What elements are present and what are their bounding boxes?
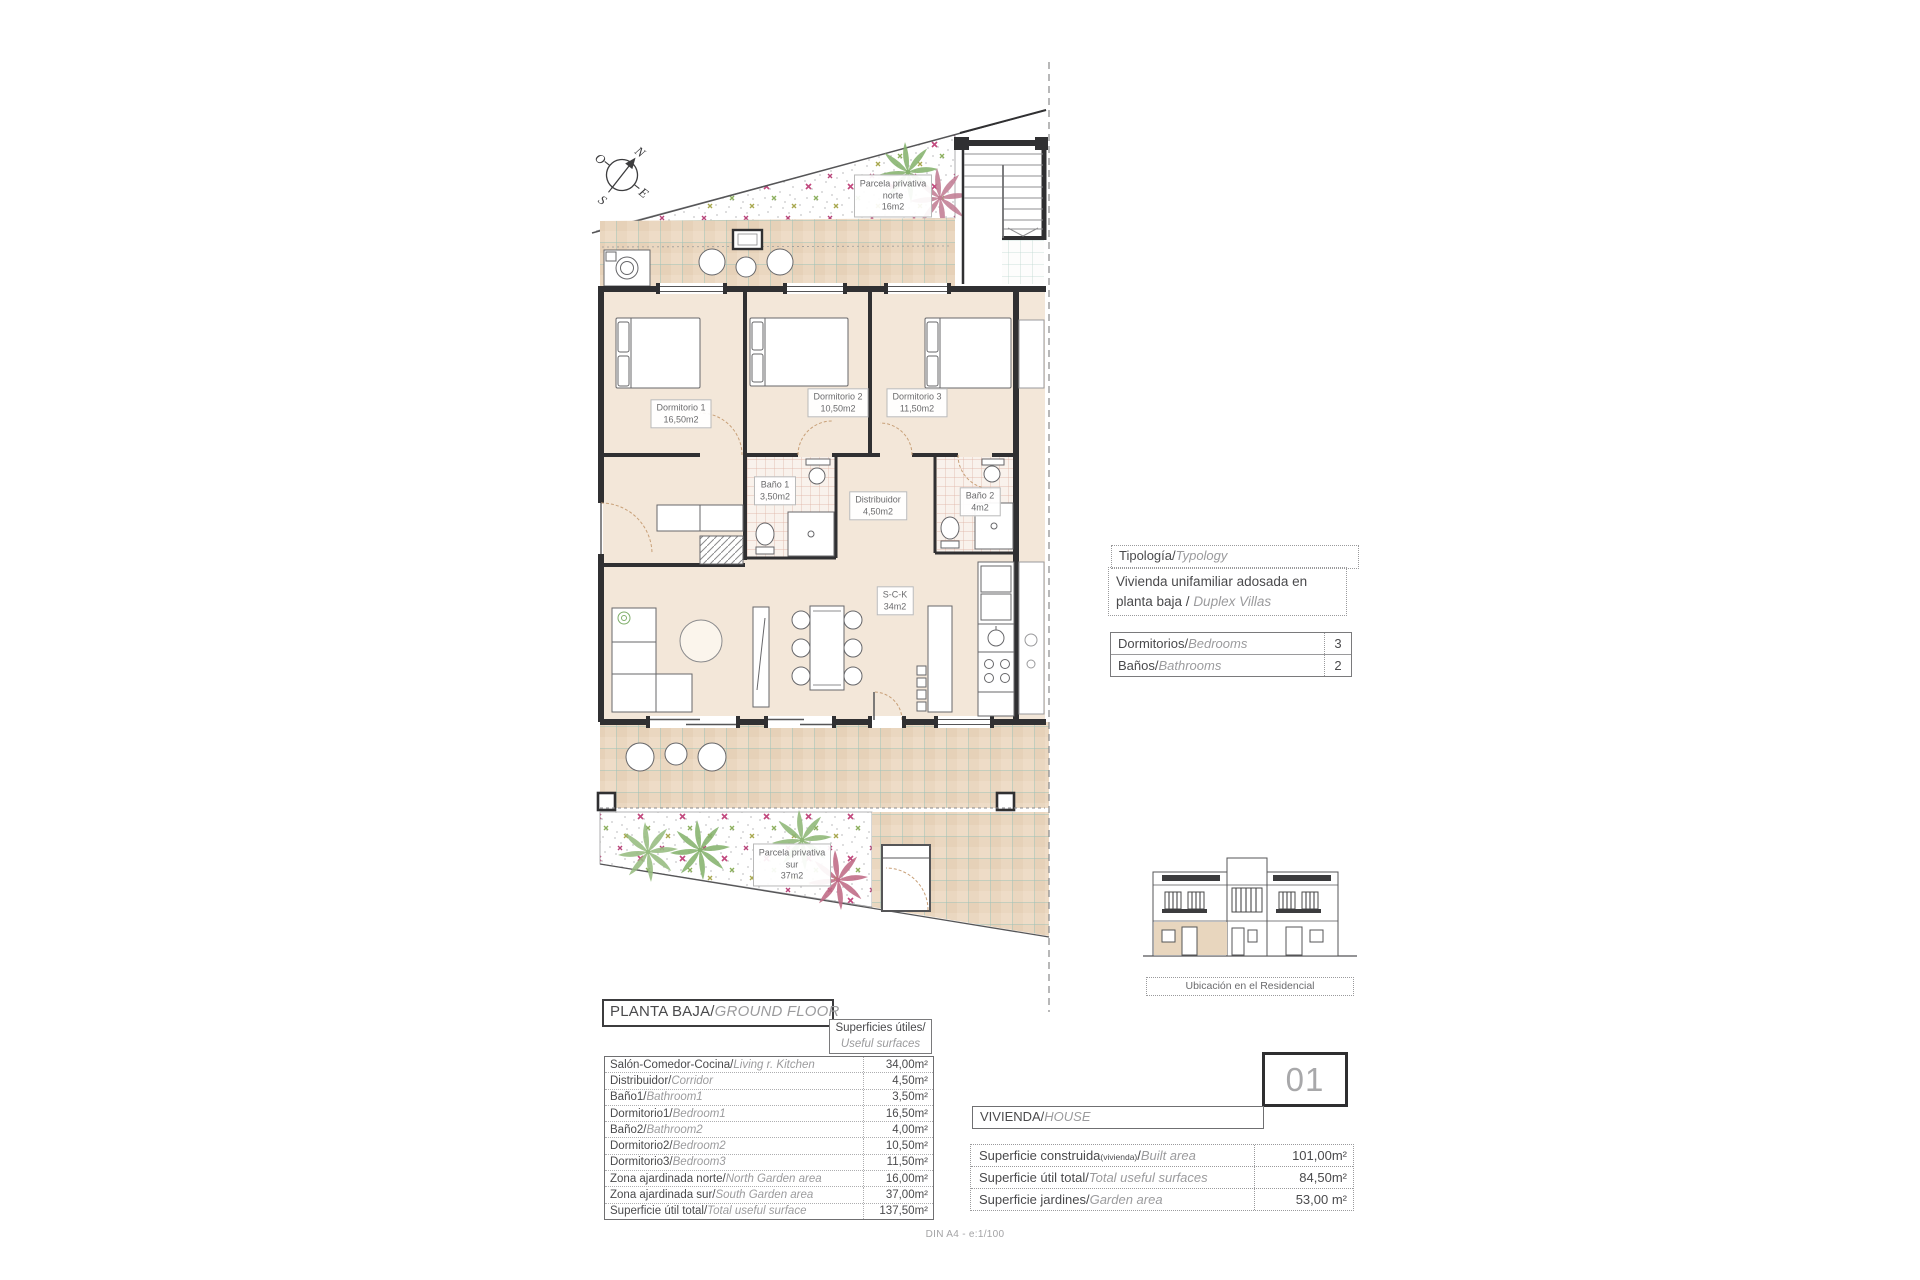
bed-dorm2 xyxy=(750,318,848,386)
label-dormitorio2: Dormitorio 210,50m2 xyxy=(807,388,868,417)
location-caption: Ubicación en el Residencial xyxy=(1146,977,1354,996)
floor-title: PLANTA BAJA/GROUND FLOOR xyxy=(602,999,834,1027)
plan-sheet: N E S O Dormitorio 116,50m2 Dormitorio 2… xyxy=(0,0,1920,1280)
label-dormitorio3: Dormitorio 311,50m2 xyxy=(886,388,947,417)
unit-number-badge: 01 xyxy=(1262,1052,1348,1107)
label-garden-north: Parcela privativa norte16m2 xyxy=(854,174,932,217)
bed-dorm1 xyxy=(616,318,700,388)
table-row: Baños/Bathrooms 2 xyxy=(1111,654,1351,676)
bathrooms-count: 2 xyxy=(1324,655,1351,676)
rug xyxy=(680,620,722,662)
rooms-table: Dormitorios/Bedrooms 3 Baños/Bathrooms 2 xyxy=(1110,632,1352,677)
south-terrace xyxy=(598,722,1049,810)
table-row: Baño1/Bathroom13,50m² xyxy=(605,1089,933,1105)
table-row: Superficie jardines/Garden area 53,00 m² xyxy=(971,1188,1353,1210)
label-dormitorio1: Dormitorio 116,50m2 xyxy=(650,399,711,428)
useful-surfaces-header: Superficies útiles/Useful surfaces xyxy=(829,1019,932,1054)
table-row: Salón-Comedor-Cocina/Living r. Kitchen34… xyxy=(605,1057,933,1072)
table-row: Distribuidor/Corridor4,50m² xyxy=(605,1072,933,1088)
kitchen-counter xyxy=(978,562,1014,716)
building-elevation xyxy=(1140,852,1360,964)
label-sck: S-C-K34m2 xyxy=(877,586,914,615)
compass-rose: N E S O xyxy=(573,126,670,225)
compass-e: E xyxy=(635,184,651,201)
table-row: Dormitorio3/Bedroom311,50m² xyxy=(605,1154,933,1170)
bed-dorm3 xyxy=(925,318,1011,388)
table-row: Dormitorios/Bedrooms 3 xyxy=(1111,633,1351,654)
bedrooms-count: 3 xyxy=(1324,633,1351,654)
table-row: Zona ajardinada norte/North Garden area1… xyxy=(605,1170,933,1186)
sheet-footer: DIN A4 - e:1/100 xyxy=(926,1229,1005,1240)
table-row: Dormitorio1/Bedroom116,50m² xyxy=(605,1105,933,1121)
table-row: Superficie útil total/Total useful surfa… xyxy=(605,1203,933,1219)
label-garden-south: Parcela privativa sur37m2 xyxy=(753,843,831,886)
label-bano2: Baño 24m2 xyxy=(960,487,1001,516)
surface-table: Salón-Comedor-Cocina/Living r. Kitchen34… xyxy=(604,1056,934,1220)
floor-plan-drawing: N E S O xyxy=(0,0,1920,1280)
typology-body: Vivienda unifamiliar adosada en planta b… xyxy=(1108,567,1347,616)
table-row: Superficie útil total/Total useful surfa… xyxy=(971,1166,1353,1188)
compass-o: O xyxy=(592,150,609,168)
compass-s: S xyxy=(595,192,610,208)
typology-header: Tipología/Typology xyxy=(1111,545,1359,569)
table-row: Dormitorio2/Bedroom210,50m² xyxy=(605,1137,933,1153)
tv-unit xyxy=(753,607,769,707)
table-row: Zona ajardinada sur/South Garden area37,… xyxy=(605,1186,933,1202)
compass-n: N xyxy=(631,143,649,162)
table-row: Baño2/Bathroom24,00m² xyxy=(605,1121,933,1137)
dining-set xyxy=(792,606,862,690)
house-title: VIVIENDA/HOUSE xyxy=(972,1106,1264,1129)
unit-surfaces-table: Superficie construida(vivienda)/Built ar… xyxy=(970,1144,1354,1211)
label-bano1: Baño 13,50m2 xyxy=(754,476,796,505)
label-distribuidor: Distribuidor4,50m2 xyxy=(849,491,907,520)
table-row: Superficie construida(vivienda)/Built ar… xyxy=(971,1145,1353,1166)
